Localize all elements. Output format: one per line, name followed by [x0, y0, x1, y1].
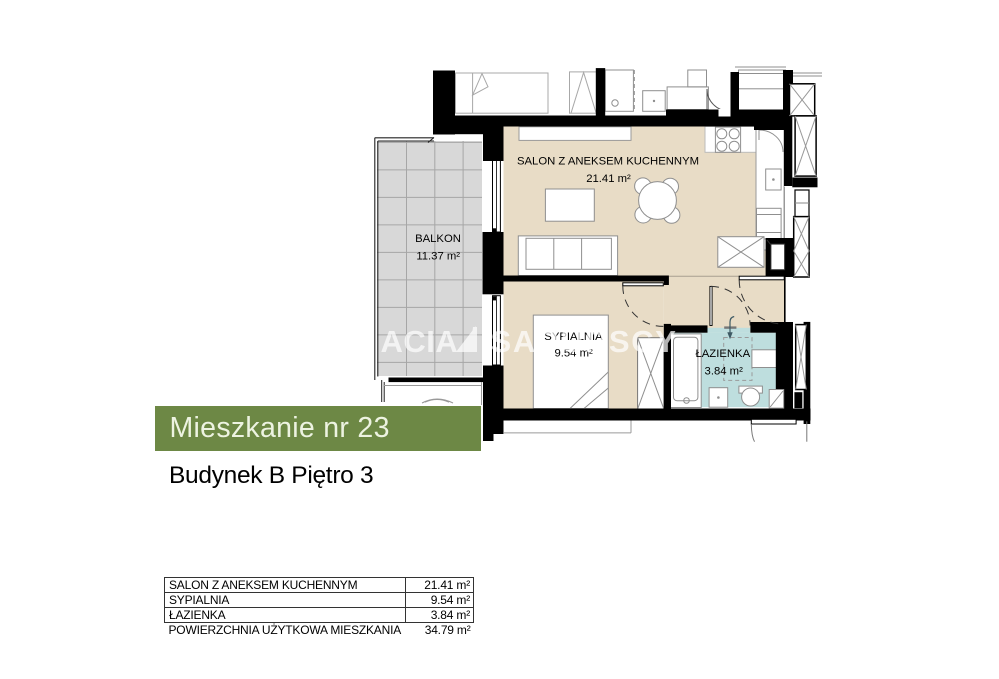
svg-text:ŁAZIENKA: ŁAZIENKA — [695, 348, 750, 360]
svg-text:11.37 m²: 11.37 m² — [416, 251, 460, 263]
svg-text:21.41 m²: 21.41 m² — [586, 173, 631, 185]
svg-text:3.84 m²: 3.84 m² — [705, 365, 744, 377]
svg-text:SADURSCY: SADURSCY — [491, 324, 678, 359]
svg-text:ACIA: ACIA — [381, 324, 459, 359]
svg-text:BALKON: BALKON — [415, 233, 461, 245]
svg-text:SALON Z ANEKSEM KUCHENNYM: SALON Z ANEKSEM KUCHENNYM — [517, 156, 699, 168]
